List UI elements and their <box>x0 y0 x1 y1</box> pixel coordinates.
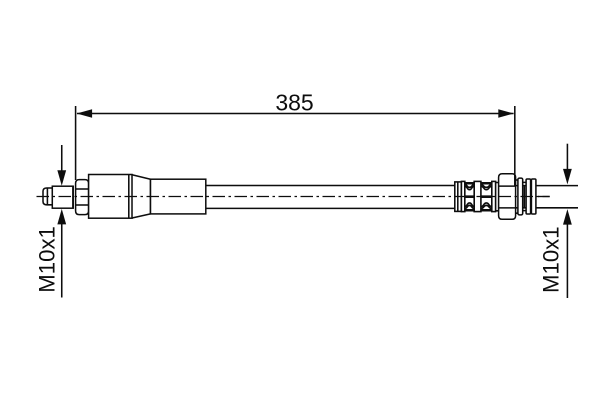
svg-text:385: 385 <box>275 89 313 115</box>
svg-text:M10x1: M10x1 <box>538 226 563 293</box>
svg-text:M10x1: M10x1 <box>34 226 59 293</box>
